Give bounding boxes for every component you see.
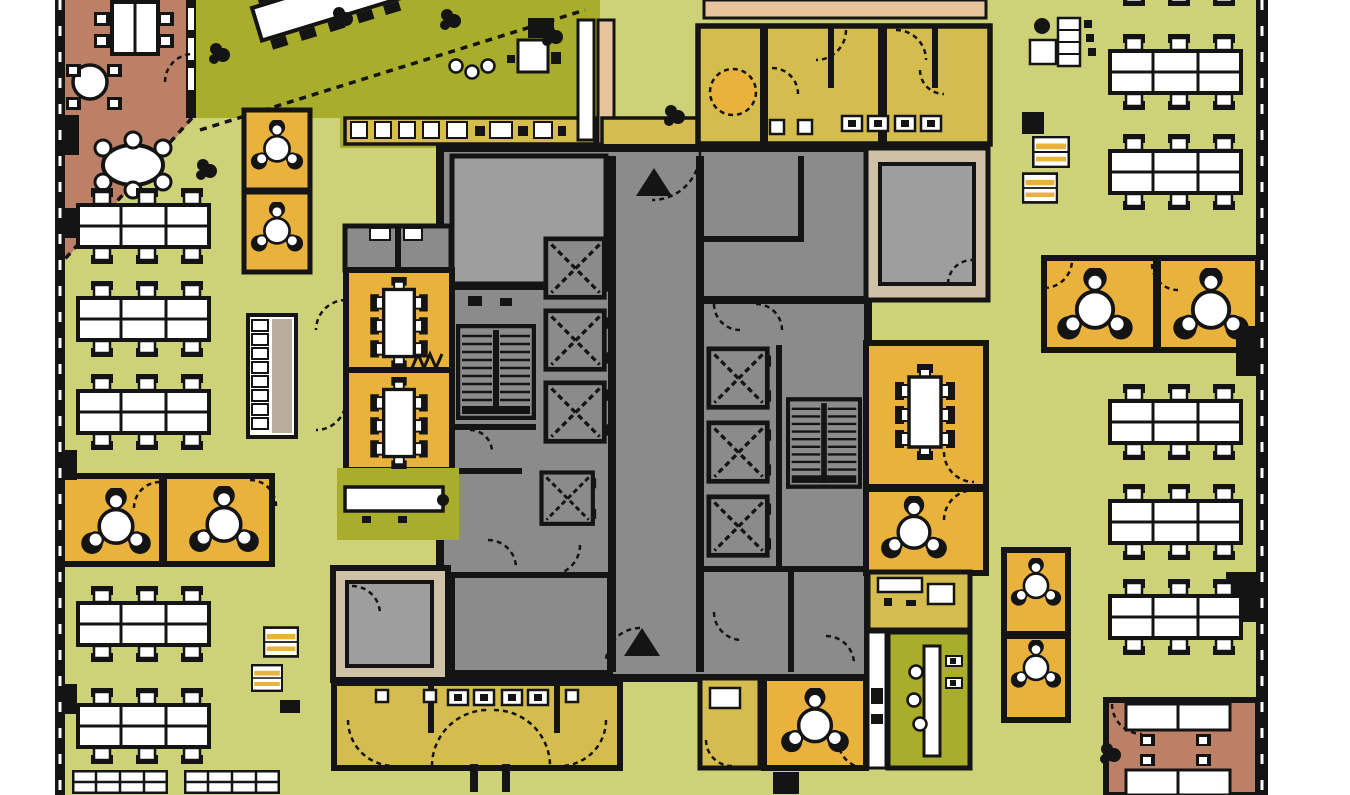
staircase (458, 326, 534, 418)
sink (770, 120, 784, 134)
service-band (704, 0, 986, 18)
elevator (709, 423, 771, 481)
stool (450, 60, 463, 73)
column (65, 450, 77, 480)
locker (264, 628, 298, 657)
side-table (518, 40, 548, 72)
sink (710, 688, 740, 708)
zone-terracotta-se (1106, 700, 1258, 795)
stool (482, 60, 495, 73)
desk-bank (1110, 384, 1241, 460)
column (63, 115, 79, 155)
desk-bank (78, 586, 209, 662)
outside-east (1268, 0, 1350, 795)
entry-mat (602, 118, 700, 146)
locker (1023, 174, 1057, 203)
elevator (546, 311, 608, 369)
desk-bank (78, 374, 209, 450)
column (65, 684, 77, 714)
stool (908, 694, 921, 707)
desk-bank (1110, 134, 1241, 210)
meeting-room-interior (347, 582, 432, 666)
elevator (709, 349, 771, 407)
stool (910, 666, 923, 679)
desk-bank (1110, 579, 1241, 655)
desk-bank (78, 188, 209, 264)
column (773, 772, 799, 794)
staircase (788, 399, 860, 486)
stool (914, 718, 927, 731)
elevator (541, 472, 596, 523)
locker (1033, 137, 1069, 167)
elevator (709, 497, 771, 555)
elevator (546, 383, 608, 441)
desk-grid (73, 771, 167, 793)
zone-meeting-ne (866, 148, 988, 300)
column (280, 700, 300, 713)
high-table (924, 646, 940, 756)
counter-appliances (351, 122, 566, 138)
column (65, 208, 77, 238)
desk-bank (1110, 0, 1241, 6)
desk-grid (185, 771, 279, 793)
core-room-sw (452, 575, 610, 673)
column (1022, 112, 1044, 134)
desk-bank (1110, 34, 1241, 110)
wall-panel (578, 20, 594, 140)
round-table (710, 69, 756, 115)
desk-bank (78, 281, 209, 357)
meeting-room-interior (880, 164, 974, 284)
outside-west (0, 0, 55, 795)
desk-bank (1110, 484, 1241, 560)
stool (466, 66, 479, 79)
locker (252, 665, 282, 691)
bench-table (345, 487, 443, 511)
desk-bank (78, 688, 209, 764)
sink (798, 120, 812, 134)
floor-plan (0, 0, 1350, 795)
floor-plan-canvas (0, 0, 1350, 795)
elevator (546, 239, 608, 297)
